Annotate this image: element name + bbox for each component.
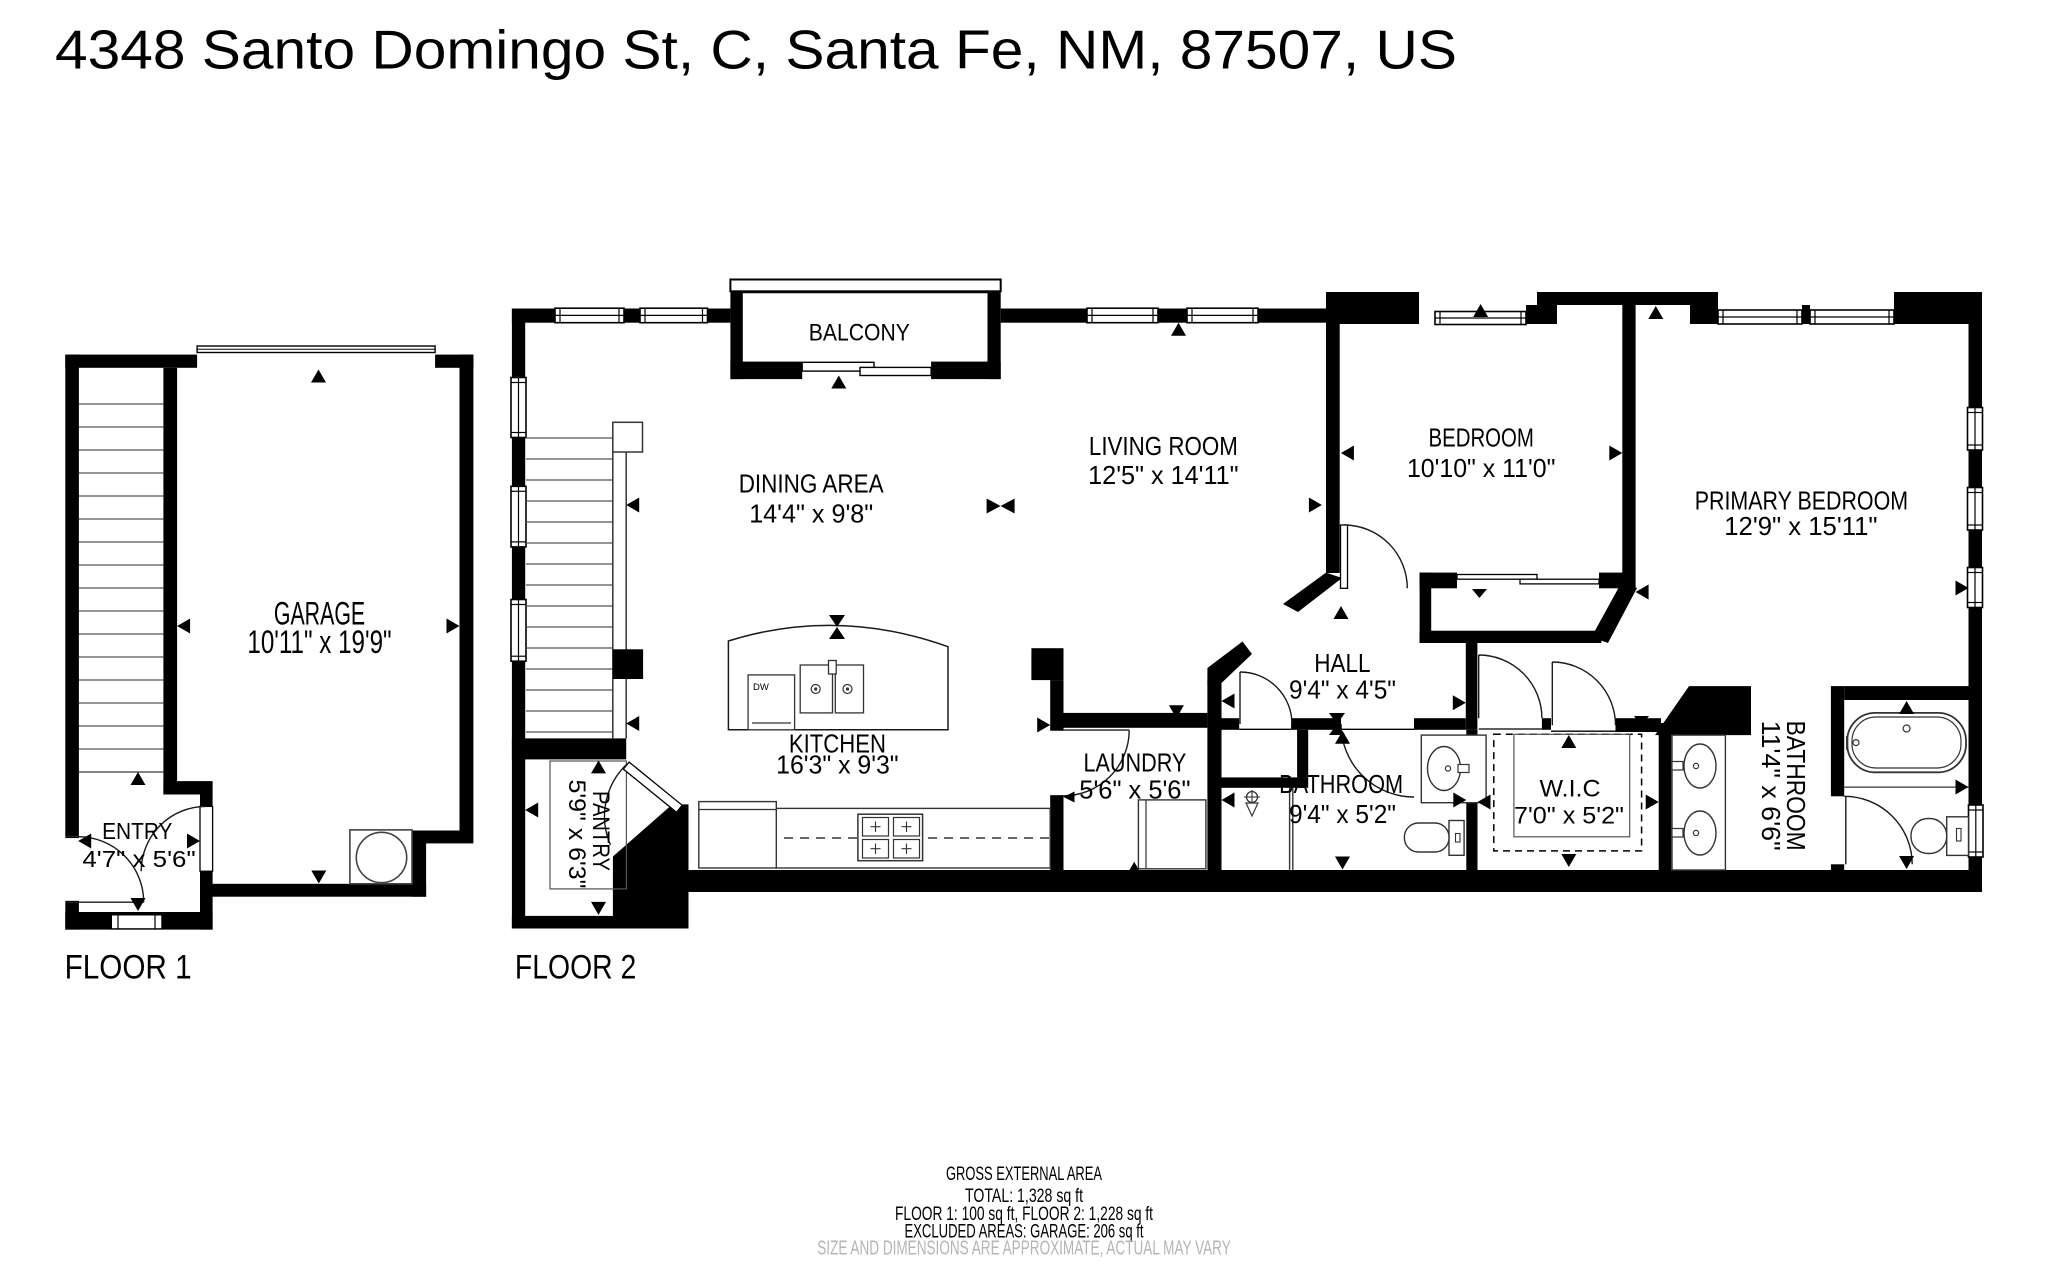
- svg-text:DW: DW: [753, 682, 769, 693]
- svg-text:PANTRY: PANTRY: [587, 791, 614, 871]
- svg-text:7'0" x 5'2": 7'0" x 5'2": [1514, 802, 1624, 829]
- svg-text:16'3" x 9'3": 16'3" x 9'3": [776, 749, 899, 779]
- svg-text:9'4" x 4'5": 9'4" x 4'5": [1289, 675, 1396, 705]
- svg-text:ENTRY: ENTRY: [102, 818, 172, 844]
- svg-text:12'9" x 15'11": 12'9" x 15'11": [1724, 511, 1877, 541]
- svg-text:5'9" x 6'3": 5'9" x 6'3": [563, 780, 590, 889]
- svg-text:10'10" x 11'0": 10'10" x 11'0": [1407, 453, 1556, 483]
- svg-text:4348 Santo Domingo St, C, Sant: 4348 Santo Domingo St, C, Santa Fe, NM, …: [55, 19, 1457, 81]
- svg-text:11'4" x 6'6": 11'4" x 6'6": [1756, 721, 1786, 851]
- svg-text:10'11" x 19'9": 10'11" x 19'9": [247, 624, 391, 660]
- svg-text:BALCONY: BALCONY: [809, 319, 910, 346]
- svg-text:5'6" x 5'6": 5'6" x 5'6": [1079, 775, 1190, 805]
- svg-text:BEDROOM: BEDROOM: [1429, 423, 1534, 453]
- svg-text:DINING AREA: DINING AREA: [739, 468, 885, 498]
- svg-text:FLOOR 2: FLOOR 2: [515, 949, 636, 987]
- svg-text:SIZE AND DIMENSIONS ARE APPROX: SIZE AND DIMENSIONS ARE APPROXIMATE, ACT…: [817, 1238, 1231, 1260]
- svg-text:W.I.C: W.I.C: [1540, 776, 1601, 803]
- svg-text:HALL: HALL: [1314, 648, 1370, 678]
- svg-text:9'4" x 5'2": 9'4" x 5'2": [1289, 799, 1396, 829]
- svg-text:BATHROOM: BATHROOM: [1279, 769, 1403, 799]
- svg-text:GROSS EXTERNAL AREA: GROSS EXTERNAL AREA: [946, 1164, 1102, 1185]
- svg-text:FLOOR 1: FLOOR 1: [65, 949, 192, 987]
- svg-text:14'4" x 9'8": 14'4" x 9'8": [749, 499, 873, 529]
- svg-text:LIVING ROOM: LIVING ROOM: [1089, 431, 1238, 461]
- svg-text:LAUNDRY: LAUNDRY: [1084, 748, 1187, 778]
- svg-text:12'5" x 14'11": 12'5" x 14'11": [1088, 460, 1239, 490]
- svg-text:4'7" x 5'6": 4'7" x 5'6": [82, 846, 195, 872]
